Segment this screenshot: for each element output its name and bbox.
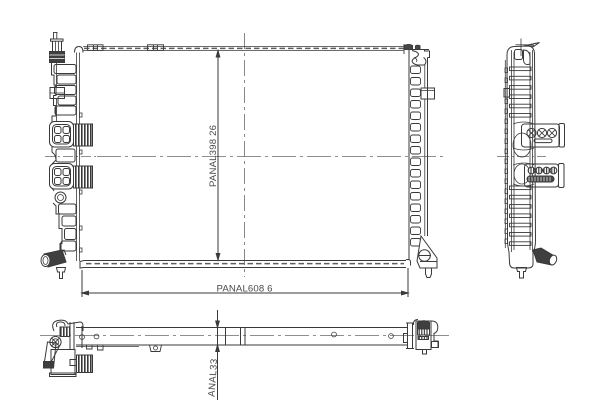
svg-text:PANAL608 6: PANAL608 6 (217, 284, 273, 295)
svg-text:ANAL33: ANAL33 (207, 359, 221, 398)
svg-text:PANAL398 26: PANAL398 26 (208, 125, 219, 187)
